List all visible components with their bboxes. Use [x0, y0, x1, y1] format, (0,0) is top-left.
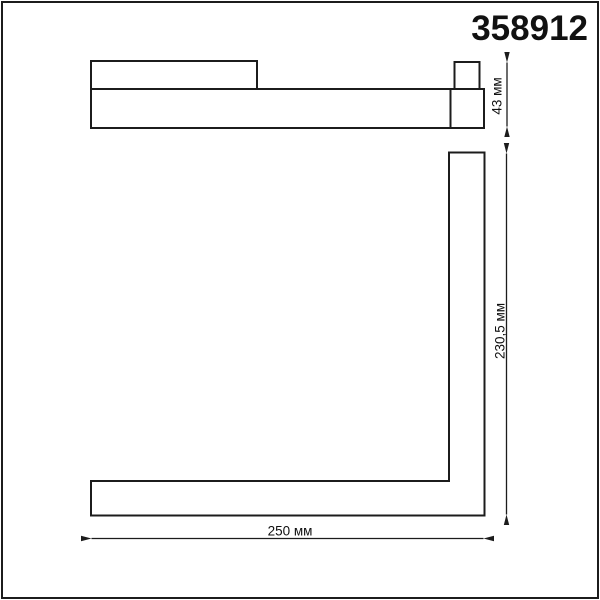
side-view-outline [91, 61, 484, 128]
height-dimension-label: 43 мм [490, 77, 504, 114]
side-view-body [91, 89, 484, 128]
side-view-top-housing [91, 61, 257, 89]
width-dimension-label: 250 мм [268, 524, 313, 538]
dimension-lines [92, 63, 508, 539]
technical-drawing-canvas: 358912 43 мм 230,5 мм 250 мм [0, 0, 600, 600]
front-view-outline [91, 153, 485, 516]
product-code: 358912 [471, 11, 588, 46]
side-view-track-connector [455, 62, 480, 89]
side-dimension-label: 230,5 мм [493, 303, 507, 359]
dimension-drawing [0, 0, 600, 600]
front-view-l-profile [91, 153, 485, 516]
